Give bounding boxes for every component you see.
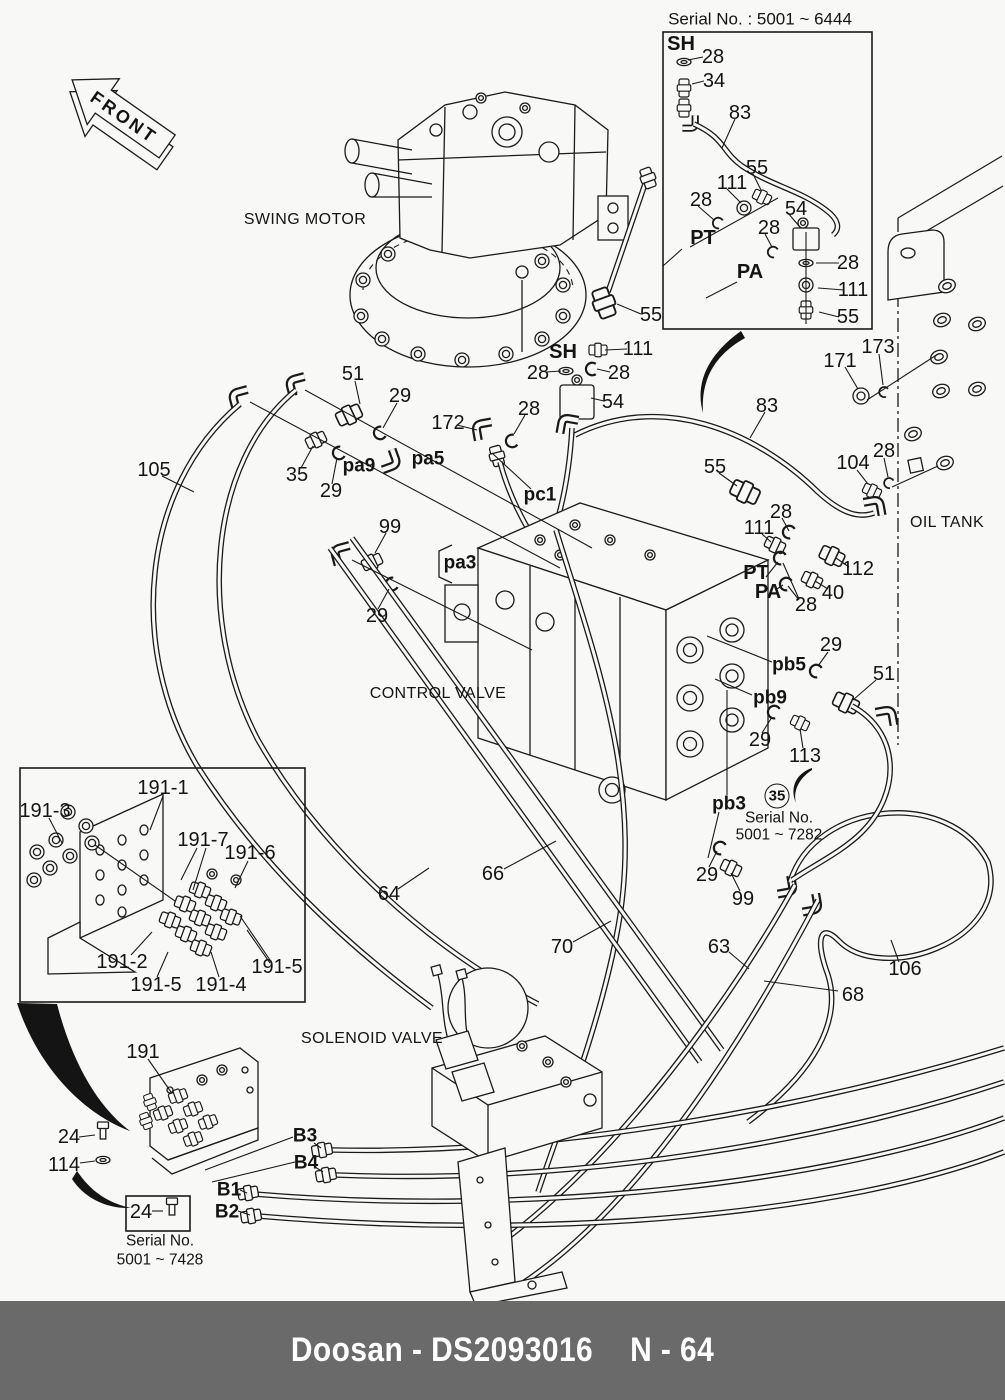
- parts-diagram-page: FRONT: [0, 0, 1005, 1400]
- footer-doc-id: Doosan - DS2093016: [291, 1331, 593, 1370]
- inset-top-right: [663, 32, 872, 329]
- footer-bar: Doosan - DS2093016 N - 64: [0, 1301, 1005, 1400]
- diagram-artwork: FRONT: [0, 0, 1005, 1400]
- swing-motor-drawing: [345, 92, 628, 367]
- serial-callout-box: [126, 1196, 190, 1231]
- front-arrow: FRONT: [50, 57, 188, 181]
- control-valve-drawing: [439, 503, 768, 803]
- solenoid-valve-drawing: [431, 965, 602, 1306]
- oil-tank-outline: [888, 156, 1003, 745]
- footer-page-number: N - 64: [630, 1331, 714, 1370]
- inset-bottom-left: [20, 768, 305, 1002]
- pa-line-fittings: [232, 376, 398, 592]
